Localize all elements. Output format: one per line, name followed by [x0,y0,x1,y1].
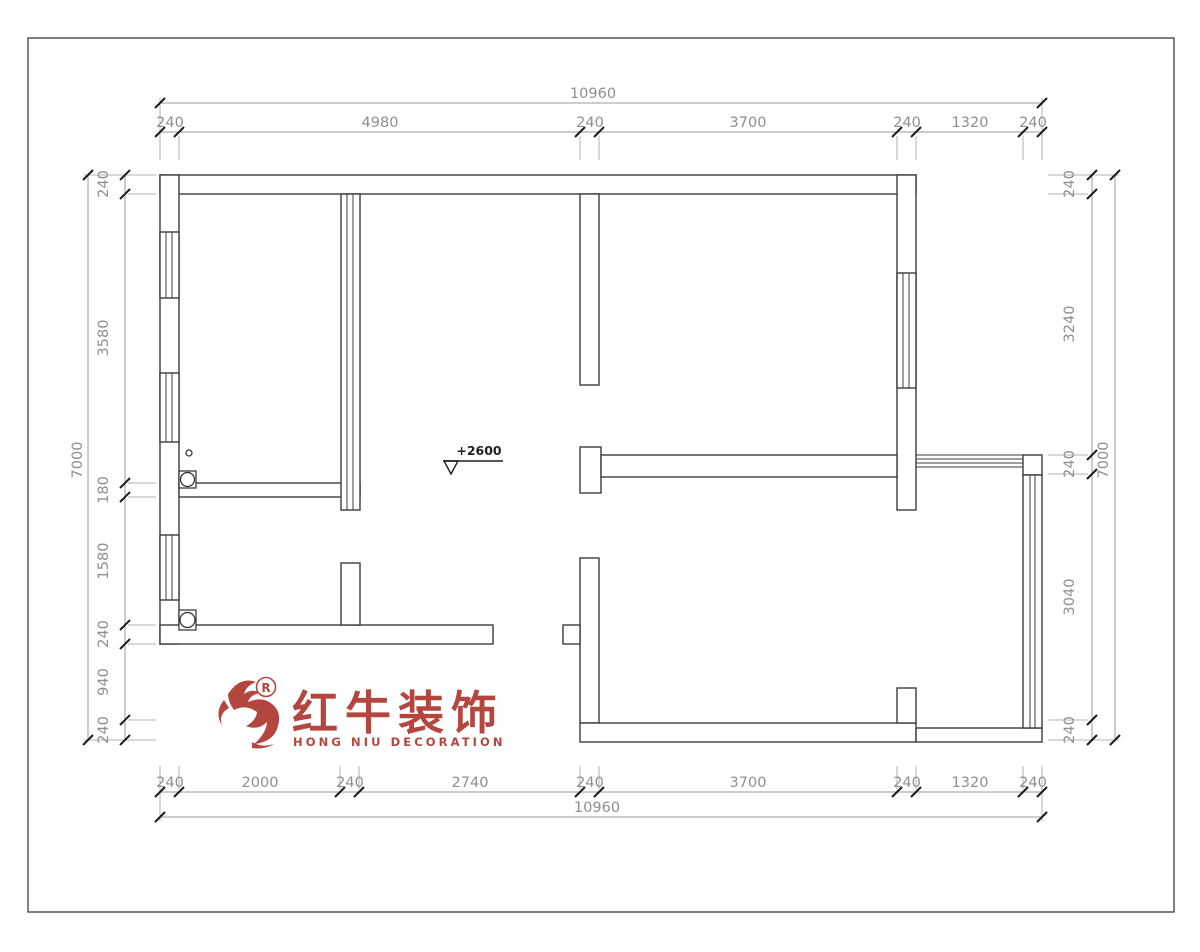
balcony-top-window [916,455,1023,467]
lower-right-door-stub [563,625,580,644]
small-pipe-symbol [186,450,192,456]
dim-top-seg4: 240 [893,115,921,131]
dim-bottom-seg2: 240 [336,775,364,791]
logo: R 红牛装饰 HONG NIU DECORATION [218,678,505,750]
dim-top-seg0: 240 [156,115,184,131]
dim-left-seg2: 180 [96,476,112,504]
floor-plan-canvas: 10960 240 4980 240 3700 240 1320 240 109… [0,0,1200,952]
dim-top-seg3: 3700 [730,115,767,131]
dim-bottom-seg6: 240 [893,775,921,791]
dim-bottom-seg5: 3700 [730,775,767,791]
interior-wall-upper-center [580,194,599,385]
dim-bottom-seg0: 240 [156,775,184,791]
dim-top-seg1: 4980 [362,115,399,131]
level-marker-text: +2600 [456,443,502,458]
dim-bottom-seg7: 1320 [952,775,989,791]
level-marker: +2600 [443,443,503,474]
dim-bottom-seg8: 240 [1019,775,1047,791]
window-left-upper-2 [160,373,179,442]
top-wall [160,175,916,194]
dim-right-seg4: 240 [1062,716,1078,744]
lower-right-room-left-wall [580,558,599,723]
walls [160,175,1042,742]
drain-symbol-upper [179,471,196,488]
logo-chinese-text: 红牛装饰 [292,686,504,740]
balcony-bottom-wall [916,728,1042,742]
dim-left-seg3: 1580 [96,543,112,580]
dim-top-overall: 10960 [570,86,616,102]
dim-left-seg5: 940 [96,668,112,696]
dim-right-seg3: 3040 [1062,579,1078,616]
dim-left-seg1: 3580 [96,320,112,357]
logo-english-text: HONG NIU DECORATION [293,735,506,749]
dim-left-seg4: 240 [96,620,112,648]
registered-r: R [261,681,270,695]
dim-bottom-seg1: 2000 [242,775,279,791]
dim-left-overall: 7000 [70,442,86,479]
dim-right-seg0: 240 [1062,170,1078,198]
drawing-sheet: 10960 240 4980 240 3700 240 1320 240 109… [0,0,1200,952]
dim-left-seg0: 240 [96,170,112,198]
window-left-upper-1 [160,232,179,298]
dim-bottom-seg3: 2740 [452,775,489,791]
dim-right-seg2: 240 [1062,450,1078,478]
dim-top-seg6: 240 [1019,115,1047,131]
balcony-corner-post [1023,455,1042,475]
balcony-partition-stub [897,688,916,723]
drain-symbol-lower [179,610,196,630]
glass-partition-center [341,194,360,510]
dim-top-seg2: 240 [576,115,604,131]
upper-left-room-bottom-wall [179,483,360,497]
lower-left-bottom-wall [160,625,493,644]
balcony-right-window [1023,475,1042,728]
dim-bottom-overall: 10960 [574,800,620,816]
interior-wall-tee-post [580,447,601,493]
dim-right-seg1: 3240 [1062,306,1078,343]
level-marker-triangle [444,461,458,474]
dim-right-overall: 7000 [1096,442,1112,479]
fixtures [179,450,196,630]
dim-top-seg5: 1320 [952,115,989,131]
lower-left-stub-wall [341,563,360,625]
registered-trademark: R [257,678,276,697]
dim-left-seg6: 240 [96,716,112,744]
window-left-lower [160,535,179,600]
dim-bottom-seg4: 240 [576,775,604,791]
interior-wall-mid-horizontal [601,455,897,477]
lower-right-room-bottom-wall [580,723,916,742]
window-right-upper [897,273,916,388]
